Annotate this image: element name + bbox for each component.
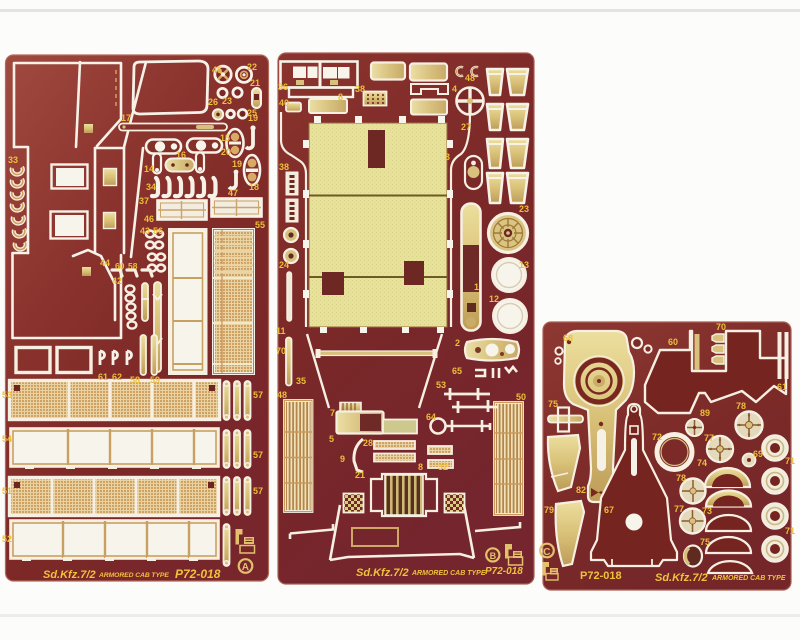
svg-text:57: 57 bbox=[253, 450, 263, 460]
svg-text:12: 12 bbox=[489, 294, 499, 304]
svg-text:75: 75 bbox=[548, 399, 558, 409]
svg-text:52: 52 bbox=[2, 534, 12, 544]
svg-text:57: 57 bbox=[253, 390, 263, 400]
svg-text:38: 38 bbox=[355, 84, 365, 94]
svg-text:64: 64 bbox=[426, 412, 436, 422]
svg-text:77: 77 bbox=[674, 504, 684, 514]
svg-text:ARMORED CAB TYPE: ARMORED CAB TYPE bbox=[411, 570, 486, 577]
svg-text:A: A bbox=[242, 562, 249, 573]
svg-text:18: 18 bbox=[249, 182, 259, 192]
svg-text:53: 53 bbox=[2, 390, 12, 400]
svg-text:B: B bbox=[490, 551, 497, 561]
svg-text:8: 8 bbox=[338, 92, 343, 102]
svg-text:69: 69 bbox=[753, 449, 763, 459]
svg-text:65: 65 bbox=[452, 366, 462, 376]
svg-text:Sd.Kfz.7/2: Sd.Kfz.7/2 bbox=[43, 569, 96, 581]
svg-text:Sd.Kfz.7/2: Sd.Kfz.7/2 bbox=[356, 567, 409, 579]
svg-text:78: 78 bbox=[676, 473, 686, 483]
svg-text:33: 33 bbox=[8, 155, 18, 165]
svg-text:59: 59 bbox=[150, 375, 160, 385]
svg-text:23: 23 bbox=[519, 204, 529, 214]
svg-text:9: 9 bbox=[340, 454, 345, 464]
svg-text:73: 73 bbox=[702, 506, 712, 516]
svg-text:43: 43 bbox=[140, 226, 150, 236]
svg-text:ARMORED CAB TYPE: ARMORED CAB TYPE bbox=[711, 575, 786, 582]
svg-text:11: 11 bbox=[276, 326, 286, 336]
svg-text:44: 44 bbox=[100, 258, 110, 268]
svg-text:26: 26 bbox=[208, 97, 218, 107]
svg-text:77: 77 bbox=[704, 433, 714, 443]
svg-text:57: 57 bbox=[253, 486, 263, 496]
svg-text:40: 40 bbox=[279, 98, 289, 108]
svg-text:28: 28 bbox=[363, 438, 373, 448]
svg-text:58: 58 bbox=[128, 261, 138, 271]
svg-text:60: 60 bbox=[115, 261, 125, 271]
svg-text:71: 71 bbox=[785, 526, 795, 536]
svg-text:74: 74 bbox=[697, 458, 707, 468]
svg-text:75: 75 bbox=[700, 537, 710, 547]
svg-text:Sd.Kfz.7/2: Sd.Kfz.7/2 bbox=[655, 572, 708, 584]
svg-text:61: 61 bbox=[777, 382, 787, 392]
svg-text:71: 71 bbox=[785, 456, 795, 466]
svg-text:67: 67 bbox=[604, 505, 614, 515]
svg-text:58: 58 bbox=[130, 375, 140, 385]
svg-text:P72-018: P72-018 bbox=[485, 566, 523, 577]
svg-text:50: 50 bbox=[516, 392, 526, 402]
svg-text:13: 13 bbox=[519, 260, 529, 270]
svg-text:17: 17 bbox=[121, 113, 131, 123]
svg-text:37: 37 bbox=[139, 196, 149, 206]
svg-text:53: 53 bbox=[436, 380, 446, 390]
svg-text:62: 62 bbox=[112, 372, 122, 382]
svg-text:61: 61 bbox=[98, 372, 108, 382]
svg-text:42: 42 bbox=[112, 276, 122, 286]
svg-text:P72-018: P72-018 bbox=[580, 570, 622, 582]
svg-text:54: 54 bbox=[2, 434, 12, 444]
svg-text:72: 72 bbox=[652, 432, 662, 442]
svg-text:19: 19 bbox=[248, 113, 258, 123]
svg-text:21: 21 bbox=[355, 470, 365, 480]
svg-text:P72-018: P72-018 bbox=[175, 567, 221, 581]
svg-text:68: 68 bbox=[563, 333, 573, 343]
svg-text:70: 70 bbox=[276, 346, 286, 356]
svg-text:89: 89 bbox=[700, 408, 710, 418]
svg-text:16: 16 bbox=[176, 150, 186, 160]
svg-text:4: 4 bbox=[452, 84, 457, 94]
svg-text:19: 19 bbox=[232, 159, 242, 169]
svg-text:48: 48 bbox=[465, 73, 475, 83]
svg-text:21: 21 bbox=[250, 78, 260, 88]
svg-text:55: 55 bbox=[255, 220, 265, 230]
svg-text:7: 7 bbox=[330, 408, 335, 418]
svg-text:47: 47 bbox=[228, 188, 238, 198]
svg-text:32: 32 bbox=[438, 462, 448, 472]
svg-text:20: 20 bbox=[221, 147, 231, 157]
svg-text:60: 60 bbox=[668, 337, 678, 347]
svg-text:14: 14 bbox=[144, 164, 154, 174]
svg-text:70: 70 bbox=[716, 322, 726, 332]
svg-text:15: 15 bbox=[220, 133, 230, 143]
svg-text:27: 27 bbox=[461, 122, 471, 132]
svg-text:8: 8 bbox=[418, 462, 423, 472]
svg-text:78: 78 bbox=[736, 401, 746, 411]
svg-text:79: 79 bbox=[544, 505, 554, 515]
svg-text:23: 23 bbox=[222, 96, 232, 106]
svg-text:38: 38 bbox=[279, 162, 289, 172]
svg-text:45: 45 bbox=[212, 65, 222, 75]
svg-text:36: 36 bbox=[278, 82, 288, 92]
svg-text:22: 22 bbox=[247, 62, 257, 72]
svg-text:2: 2 bbox=[455, 338, 460, 348]
svg-text:51: 51 bbox=[2, 486, 12, 496]
svg-text:48: 48 bbox=[277, 390, 287, 400]
svg-text:C: C bbox=[543, 547, 550, 558]
svg-text:56: 56 bbox=[153, 226, 163, 236]
svg-text:34: 34 bbox=[146, 182, 156, 192]
svg-text:1: 1 bbox=[474, 282, 479, 292]
svg-text:35: 35 bbox=[296, 376, 306, 386]
svg-text:3: 3 bbox=[445, 152, 450, 162]
svg-text:46: 46 bbox=[144, 214, 154, 224]
svg-text:82: 82 bbox=[576, 485, 586, 495]
svg-text:24: 24 bbox=[279, 260, 289, 270]
svg-text:ARMORED CAB TYPE: ARMORED CAB TYPE bbox=[98, 572, 169, 579]
svg-text:5: 5 bbox=[329, 434, 334, 444]
